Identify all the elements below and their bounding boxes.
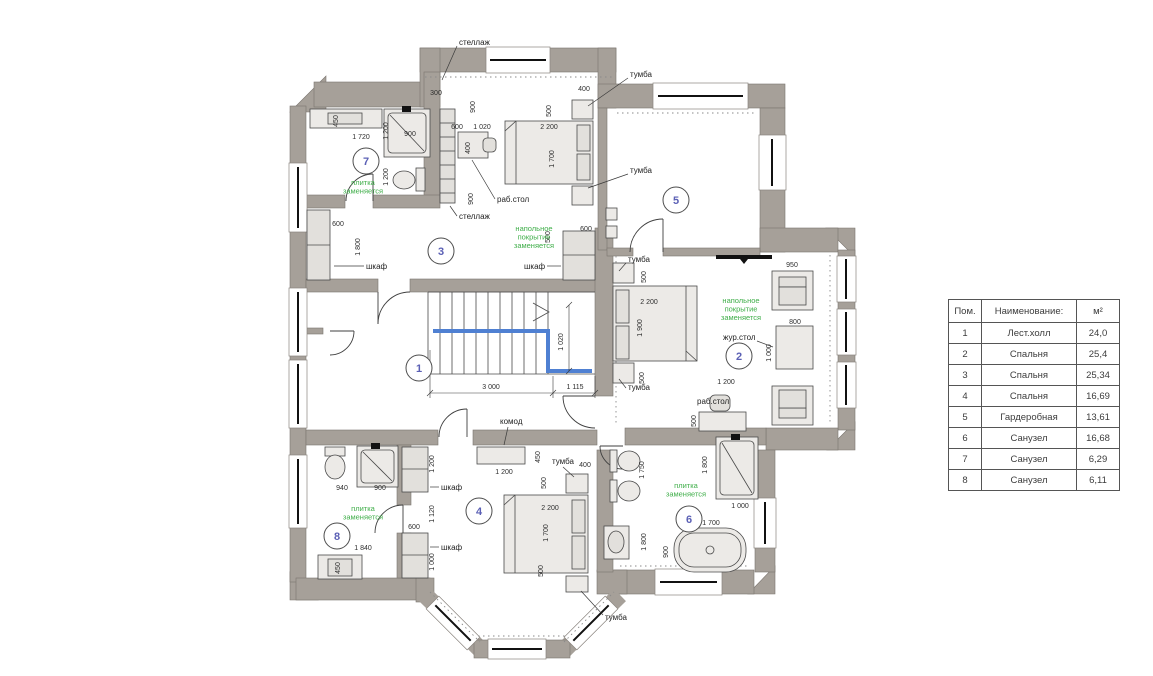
wardrobe-room4-top: [402, 447, 428, 492]
wall-hall-bottom-a: [306, 430, 438, 445]
legend-header-room: Пом.: [949, 300, 982, 323]
legend-room-area: 6,29: [1077, 449, 1120, 470]
shower-room8: [357, 443, 398, 487]
room-number: 3: [438, 246, 444, 258]
furniture-label: тумба: [630, 70, 652, 79]
window: [488, 639, 546, 659]
legend-room-area: 24,0: [1077, 323, 1120, 344]
dim-label: 500: [546, 105, 553, 117]
legend-header-name: Наименование:: [982, 300, 1077, 323]
window: [655, 569, 722, 595]
legend-room-num: 3: [949, 365, 982, 386]
legend-row: 2Спальня25,4: [949, 344, 1120, 365]
cabinet-room7: [310, 109, 382, 128]
dim-label: 900: [470, 101, 477, 113]
furniture-label: стеллаж: [459, 38, 491, 47]
desk-room3: [458, 132, 496, 158]
dim-label: 2 200: [640, 299, 658, 306]
dim-label: 1 020: [558, 333, 565, 351]
furniture-label: тумба: [628, 255, 650, 264]
room-number: 7: [363, 156, 369, 168]
room-number: 2: [736, 351, 742, 363]
armchair-room2-bottom: [772, 386, 813, 425]
dim-label: 1 115: [567, 384, 584, 391]
wardrobe-room3-right: [563, 231, 595, 280]
legend-row: 4Спальня16,69: [949, 386, 1120, 407]
renovation-note: напольноепокрытиезаменяется: [514, 224, 554, 250]
dim-label: 1 720: [352, 134, 370, 141]
dim-label: 1 700: [543, 524, 550, 542]
room-number: 4: [476, 506, 483, 518]
dresser-room4: [477, 447, 525, 464]
furniture-label: шкаф: [441, 543, 463, 552]
dim-label: 1 200: [717, 379, 735, 386]
dim-label: 400: [578, 86, 590, 93]
legend-room-num: 4: [949, 386, 982, 407]
furniture-label: стеллаж: [459, 212, 491, 221]
room-number: 8: [334, 531, 340, 543]
leader-line: [472, 160, 495, 199]
wall-hall-bottom-b: [473, 430, 597, 445]
legend-row: 1Лест.холл24,0: [949, 323, 1120, 344]
legend-room-num: 7: [949, 449, 982, 470]
window: [289, 163, 307, 232]
legend-room-area: 6,11: [1077, 470, 1120, 491]
legend-room-name: Спальня: [982, 365, 1077, 386]
renovation-note: плитказаменяется: [343, 504, 383, 522]
dim-label: 900: [374, 485, 386, 492]
legend-room-num: 1: [949, 323, 982, 344]
dim-label: 500: [691, 415, 698, 427]
window: [759, 135, 786, 190]
dim-label: 600: [332, 221, 344, 228]
furniture-label: шкаф: [366, 262, 388, 271]
dim-label: 1 000: [429, 553, 436, 571]
door-hall-closet: [330, 331, 354, 355]
dim-label: 400: [579, 462, 591, 469]
bed-room2: [613, 286, 697, 361]
window: [837, 256, 856, 302]
legend-room-name: Лест.холл: [982, 323, 1077, 344]
nightstand-room2-bottom: [613, 363, 634, 383]
dim-label: 900: [468, 193, 475, 205]
dim-label: 1 840: [354, 545, 372, 552]
leader-line: [757, 341, 773, 347]
door-hall-room2: [563, 396, 595, 428]
window: [837, 309, 856, 355]
furniture-label: тумба: [552, 457, 574, 466]
dim-label: 3 000: [482, 384, 500, 391]
window: [486, 47, 550, 73]
window: [653, 83, 748, 109]
legend-room-area: 25,4: [1077, 344, 1120, 365]
window: [837, 362, 856, 408]
bidet-room6: [610, 480, 640, 502]
toilet-room6: [610, 450, 640, 472]
dim-label: 300: [430, 90, 442, 97]
furniture-label: тумба: [605, 613, 627, 622]
room-legend-table: Пом. Наименование: м² 1Лест.холл24,0 2Сп…: [948, 299, 1120, 491]
wall-room3-hall-b: [410, 279, 597, 292]
window: [426, 596, 480, 650]
stair-rail: [433, 331, 592, 371]
leader-line: [588, 174, 628, 188]
nightstand-room3-bottom: [572, 186, 593, 205]
door-jambs-room5: [606, 208, 617, 238]
vanity-room6: [604, 526, 629, 559]
wardrobe-room4-bottom: [402, 533, 428, 578]
legend-row: 7Санузел6,29: [949, 449, 1120, 470]
dim-label: 450: [535, 451, 542, 463]
dim-label: 1 020: [473, 124, 491, 131]
legend-header-row: Пом. Наименование: м²: [949, 300, 1120, 323]
door-room5: [630, 219, 663, 252]
nightstand-room3-top: [572, 100, 593, 119]
legend-room-name: Спальня: [982, 344, 1077, 365]
window: [754, 498, 776, 548]
dim-label: 450: [335, 562, 342, 574]
furniture-label: раб.стол: [497, 195, 530, 204]
dim-label: 1 200: [383, 168, 390, 186]
dim-label: 800: [789, 319, 801, 326]
furniture-label: шкаф: [524, 262, 546, 271]
nightstand-room4-bay: [566, 576, 588, 592]
legend-row: 3Спальня25,34: [949, 365, 1120, 386]
legend-header-area: м²: [1077, 300, 1120, 323]
dim-label: 1 120: [429, 505, 436, 523]
wall-room3-hall-a: [306, 279, 378, 292]
dim-label: 500: [641, 271, 648, 283]
floor-plan-page: 4501 7201 2009001 2006001 8003009006001 …: [0, 0, 1153, 676]
dim-label: 1 800: [641, 533, 648, 551]
legend-room-name: Спальня: [982, 386, 1077, 407]
wall-top-room7: [314, 82, 428, 107]
legend-room-name: Санузел: [982, 428, 1077, 449]
wall-bottom-room8: [296, 578, 430, 600]
toilet-room8: [325, 447, 345, 479]
wall-bottom-east-wing: [766, 428, 838, 450]
room-number: 1: [416, 363, 422, 375]
wall-top-east-wing: [760, 228, 838, 252]
legend-room-num: 2: [949, 344, 982, 365]
legend-room-area: 25,34: [1077, 365, 1120, 386]
dim-label: 940: [336, 485, 348, 492]
furniture-label: шкаф: [441, 483, 463, 492]
dim-label: 600: [580, 226, 592, 233]
wall-bay-join-right: [597, 570, 627, 594]
dim-label: 1 900: [637, 319, 644, 337]
dim-label: 1 200: [495, 469, 513, 476]
dim-label: 500: [538, 565, 545, 577]
nightstand-room4-top: [566, 474, 588, 493]
tv-room2: [716, 255, 772, 264]
room-number: 6: [686, 514, 692, 526]
dim-label: 950: [786, 262, 798, 269]
dim-label: 900: [404, 131, 416, 138]
dim-label: 600: [408, 524, 420, 531]
window: [289, 360, 307, 428]
stair-direction-arrow: [533, 303, 549, 321]
renovation-note: плитказаменяется: [666, 481, 706, 499]
legend-room-name: Гардеробная: [982, 407, 1077, 428]
dim-label: 1 000: [731, 503, 749, 510]
window: [289, 288, 307, 356]
legend-row: 5Гардеробная13,61: [949, 407, 1120, 428]
wardrobe-room3-left: [307, 210, 330, 280]
wall-room5-room2-b: [663, 248, 760, 256]
dim-label: 500: [541, 477, 548, 489]
furniture-label: тумба: [630, 166, 652, 175]
legend-row: 8Санузел6,11: [949, 470, 1120, 491]
legend-room-num: 5: [949, 407, 982, 428]
window: [564, 596, 618, 650]
dim-label: 400: [465, 142, 472, 154]
legend-room-area: 13,61: [1077, 407, 1120, 428]
legend-row: 6Санузел16,68: [949, 428, 1120, 449]
dim-label: 450: [333, 115, 340, 127]
dim-label: 1 700: [549, 150, 556, 168]
furniture-label: раб.стол: [697, 397, 730, 406]
dim-label: 1 800: [702, 456, 709, 474]
coffee-table-room2: [776, 326, 813, 369]
dim-label: 1 750: [639, 461, 646, 479]
furniture-label: комод: [500, 417, 523, 426]
legend-room-num: 8: [949, 470, 982, 491]
legend-room-name: Санузел: [982, 470, 1077, 491]
legend-room-area: 16,69: [1077, 386, 1120, 407]
dim-label: 600: [451, 124, 463, 131]
legend-room-area: 16,68: [1077, 428, 1120, 449]
renovation-note: напольноепокрытиезаменяется: [721, 296, 761, 322]
dim-label: 1 700: [702, 520, 720, 527]
leader-line: [450, 206, 457, 216]
wall-room7-bottom-b: [373, 195, 440, 208]
dim-label: 2 200: [540, 124, 558, 131]
furniture-label: тумба: [628, 383, 650, 392]
dim-label: 1 200: [429, 455, 436, 473]
room-number: 5: [673, 195, 679, 207]
renovation-note: плитказаменяется: [343, 178, 383, 196]
window: [289, 455, 307, 528]
dim-label: 900: [663, 546, 670, 558]
dim-label: 1 200: [383, 122, 390, 140]
dim-label: 2 200: [541, 505, 559, 512]
door-room3-hall: [378, 292, 410, 324]
door-hall-room4: [439, 409, 467, 437]
toilet-room7: [393, 168, 425, 191]
bathtub-room6: [674, 528, 746, 572]
wall-hall-closet-stub: [306, 328, 323, 334]
dim-label: 1 800: [355, 238, 362, 256]
legend-table: Пом. Наименование: м² 1Лест.холл24,0 2Сп…: [948, 299, 1120, 491]
armchair-room2-top: [772, 271, 813, 310]
legend-room-name: Санузел: [982, 449, 1077, 470]
furniture-label: жур.стол: [723, 333, 756, 342]
legend-room-num: 6: [949, 428, 982, 449]
shower-room6: [716, 434, 758, 499]
